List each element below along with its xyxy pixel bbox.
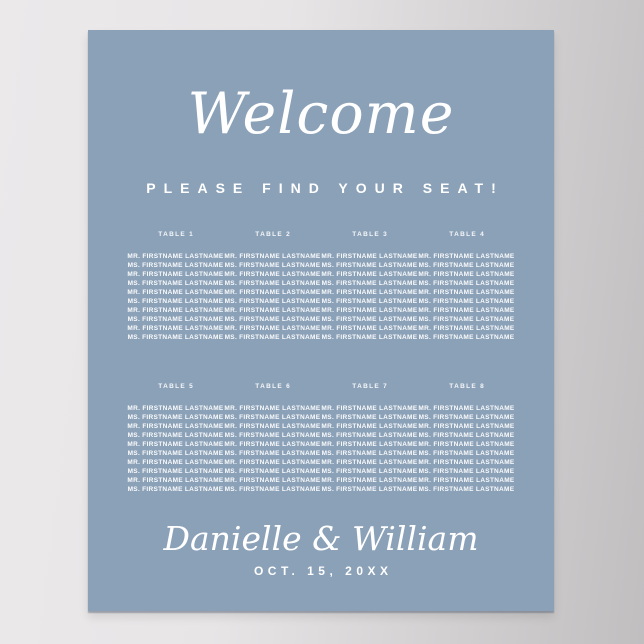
guest-name: MR. FIRSTNAME LASTNAME (127, 288, 224, 297)
table-1-title: TABLE 1 (127, 230, 224, 239)
guest-name: MS. FIRSTNAME LASTNAME (127, 297, 224, 306)
table-1-guest-list: MR. FIRSTNAME LASTNAMEMS. FIRSTNAME LAST… (127, 252, 224, 342)
guest-name: MS. FIRSTNAME LASTNAME (127, 413, 224, 422)
guest-name: MS. FIRSTNAME LASTNAME (418, 467, 515, 476)
guest-name: MS. FIRSTNAME LASTNAME (224, 279, 321, 288)
guest-name: MS. FIRSTNAME LASTNAME (418, 279, 515, 288)
guest-name: MS. FIRSTNAME LASTNAME (321, 333, 418, 342)
welcome-heading: Welcome (88, 86, 554, 143)
guest-name: MR. FIRSTNAME LASTNAME (224, 440, 321, 449)
guest-name: MS. FIRSTNAME LASTNAME (127, 467, 224, 476)
guest-name: MS. FIRSTNAME LASTNAME (418, 431, 515, 440)
guest-name: MS. FIRSTNAME LASTNAME (321, 431, 418, 440)
guest-name: MS. FIRSTNAME LASTNAME (418, 261, 515, 270)
guest-name: MR. FIRSTNAME LASTNAME (127, 270, 224, 279)
guest-name: MS. FIRSTNAME LASTNAME (418, 315, 515, 324)
guest-name: MR. FIRSTNAME LASTNAME (127, 440, 224, 449)
guest-name: MR. FIRSTNAME LASTNAME (418, 270, 515, 279)
guest-name: MR. FIRSTNAME LASTNAME (418, 476, 515, 485)
table-4-section: TABLE 4 MR. FIRSTNAME LASTNAMEMS. FIRSTN… (418, 230, 515, 342)
guest-name: MR. FIRSTNAME LASTNAME (224, 252, 321, 261)
guest-name: MS. FIRSTNAME LASTNAME (127, 333, 224, 342)
guest-name: MR. FIRSTNAME LASTNAME (127, 324, 224, 333)
guest-name: MR. FIRSTNAME LASTNAME (418, 306, 515, 315)
guest-name: MR. FIRSTNAME LASTNAME (127, 458, 224, 467)
guest-name: MS. FIRSTNAME LASTNAME (321, 279, 418, 288)
guest-name: MS. FIRSTNAME LASTNAME (127, 431, 224, 440)
guest-name: MR. FIRSTNAME LASTNAME (127, 252, 224, 261)
guest-name: MR. FIRSTNAME LASTNAME (321, 324, 418, 333)
guest-name: MS. FIRSTNAME LASTNAME (321, 261, 418, 270)
guest-name: MR. FIRSTNAME LASTNAME (321, 440, 418, 449)
guest-name: MR. FIRSTNAME LASTNAME (127, 422, 224, 431)
guest-name: MR. FIRSTNAME LASTNAME (321, 458, 418, 467)
guest-name: MR. FIRSTNAME LASTNAME (321, 270, 418, 279)
guest-name: MS. FIRSTNAME LASTNAME (321, 297, 418, 306)
guest-name: MS. FIRSTNAME LASTNAME (418, 413, 515, 422)
table-5-title: TABLE 5 (127, 382, 224, 391)
guest-name: MS. FIRSTNAME LASTNAME (418, 297, 515, 306)
tables-row-1: TABLE 1 MR. FIRSTNAME LASTNAMEMS. FIRSTN… (127, 230, 515, 342)
guest-name: MS. FIRSTNAME LASTNAME (321, 315, 418, 324)
table-2-guest-list: MR. FIRSTNAME LASTNAMEMS. FIRSTNAME LAST… (224, 252, 321, 342)
guest-name: MS. FIRSTNAME LASTNAME (224, 315, 321, 324)
table-1-section: TABLE 1 MR. FIRSTNAME LASTNAMEMS. FIRSTN… (127, 230, 224, 342)
guest-name: MR. FIRSTNAME LASTNAME (321, 404, 418, 413)
guest-name: MR. FIRSTNAME LASTNAME (418, 440, 515, 449)
guest-name: MS. FIRSTNAME LASTNAME (224, 467, 321, 476)
guest-name: MR. FIRSTNAME LASTNAME (321, 476, 418, 485)
guest-name: MS. FIRSTNAME LASTNAME (224, 333, 321, 342)
table-6-section: TABLE 6 MR. FIRSTNAME LASTNAMEMS. FIRSTN… (224, 382, 321, 494)
table-6-guest-list: MR. FIRSTNAME LASTNAMEMS. FIRSTNAME LAST… (224, 404, 321, 494)
guest-name: MR. FIRSTNAME LASTNAME (418, 422, 515, 431)
couple-names: Danielle & William (88, 522, 554, 555)
table-2-section: TABLE 2 MR. FIRSTNAME LASTNAMEMS. FIRSTN… (224, 230, 321, 342)
table-3-section: TABLE 3 MR. FIRSTNAME LASTNAMEMS. FIRSTN… (321, 230, 418, 342)
table-4-title: TABLE 4 (418, 230, 515, 239)
guest-name: MS. FIRSTNAME LASTNAME (127, 449, 224, 458)
tables-row-2: TABLE 5 MR. FIRSTNAME LASTNAMEMS. FIRSTN… (127, 382, 515, 494)
guest-name: MS. FIRSTNAME LASTNAME (224, 297, 321, 306)
guest-name: MR. FIRSTNAME LASTNAME (224, 306, 321, 315)
event-date: OCT. 15, 20XX (88, 564, 554, 578)
table-8-guest-list: MR. FIRSTNAME LASTNAMEMS. FIRSTNAME LAST… (418, 404, 515, 494)
guest-name: MR. FIRSTNAME LASTNAME (127, 306, 224, 315)
guest-name: MR. FIRSTNAME LASTNAME (224, 476, 321, 485)
guest-name: MS. FIRSTNAME LASTNAME (224, 449, 321, 458)
guest-name: MR. FIRSTNAME LASTNAME (321, 422, 418, 431)
guest-name: MR. FIRSTNAME LASTNAME (418, 404, 515, 413)
table-3-guest-list: MR. FIRSTNAME LASTNAMEMS. FIRSTNAME LAST… (321, 252, 418, 342)
table-5-section: TABLE 5 MR. FIRSTNAME LASTNAMEMS. FIRSTN… (127, 382, 224, 494)
guest-name: MR. FIRSTNAME LASTNAME (224, 270, 321, 279)
table-6-title: TABLE 6 (224, 382, 321, 391)
find-your-seat-subtitle: PLEASE FIND YOUR SEAT! (88, 180, 554, 196)
table-3-title: TABLE 3 (321, 230, 418, 239)
guest-name: MS. FIRSTNAME LASTNAME (224, 485, 321, 494)
guest-name: MS. FIRSTNAME LASTNAME (321, 449, 418, 458)
guest-name: MR. FIRSTNAME LASTNAME (321, 288, 418, 297)
table-5-guest-list: MR. FIRSTNAME LASTNAMEMS. FIRSTNAME LAST… (127, 404, 224, 494)
guest-name: MR. FIRSTNAME LASTNAME (321, 252, 418, 261)
guest-name: MS. FIRSTNAME LASTNAME (224, 431, 321, 440)
guest-name: MS. FIRSTNAME LASTNAME (224, 261, 321, 270)
table-7-title: TABLE 7 (321, 382, 418, 391)
guest-name: MR. FIRSTNAME LASTNAME (418, 288, 515, 297)
guest-name: MR. FIRSTNAME LASTNAME (224, 404, 321, 413)
guest-name: MR. FIRSTNAME LASTNAME (127, 404, 224, 413)
guest-name: MS. FIRSTNAME LASTNAME (418, 333, 515, 342)
table-8-section: TABLE 8 MR. FIRSTNAME LASTNAMEMS. FIRSTN… (418, 382, 515, 494)
guest-name: MR. FIRSTNAME LASTNAME (127, 476, 224, 485)
table-8-title: TABLE 8 (418, 382, 515, 391)
guest-name: MS. FIRSTNAME LASTNAME (321, 467, 418, 476)
guest-name: MS. FIRSTNAME LASTNAME (127, 315, 224, 324)
table-7-guest-list: MR. FIRSTNAME LASTNAMEMS. FIRSTNAME LAST… (321, 404, 418, 494)
guest-name: MR. FIRSTNAME LASTNAME (224, 458, 321, 467)
guest-name: MS. FIRSTNAME LASTNAME (321, 413, 418, 422)
guest-name: MR. FIRSTNAME LASTNAME (224, 324, 321, 333)
table-7-section: TABLE 7 MR. FIRSTNAME LASTNAMEMS. FIRSTN… (321, 382, 418, 494)
guest-name: MR. FIRSTNAME LASTNAME (418, 458, 515, 467)
guest-name: MS. FIRSTNAME LASTNAME (127, 261, 224, 270)
guest-name: MR. FIRSTNAME LASTNAME (224, 422, 321, 431)
guest-name: MS. FIRSTNAME LASTNAME (224, 413, 321, 422)
table-4-guest-list: MR. FIRSTNAME LASTNAMEMS. FIRSTNAME LAST… (418, 252, 515, 342)
guest-name: MR. FIRSTNAME LASTNAME (418, 324, 515, 333)
guest-name: MR. FIRSTNAME LASTNAME (418, 252, 515, 261)
guest-name: MR. FIRSTNAME LASTNAME (321, 306, 418, 315)
table-2-title: TABLE 2 (224, 230, 321, 239)
guest-name: MS. FIRSTNAME LASTNAME (321, 485, 418, 494)
guest-name: MS. FIRSTNAME LASTNAME (127, 279, 224, 288)
seating-chart-poster: Welcome PLEASE FIND YOUR SEAT! TABLE 1 M… (88, 30, 554, 611)
guest-name: MS. FIRSTNAME LASTNAME (127, 485, 224, 494)
guest-name: MR. FIRSTNAME LASTNAME (224, 288, 321, 297)
guest-name: MS. FIRSTNAME LASTNAME (418, 449, 515, 458)
guest-name: MS. FIRSTNAME LASTNAME (418, 485, 515, 494)
